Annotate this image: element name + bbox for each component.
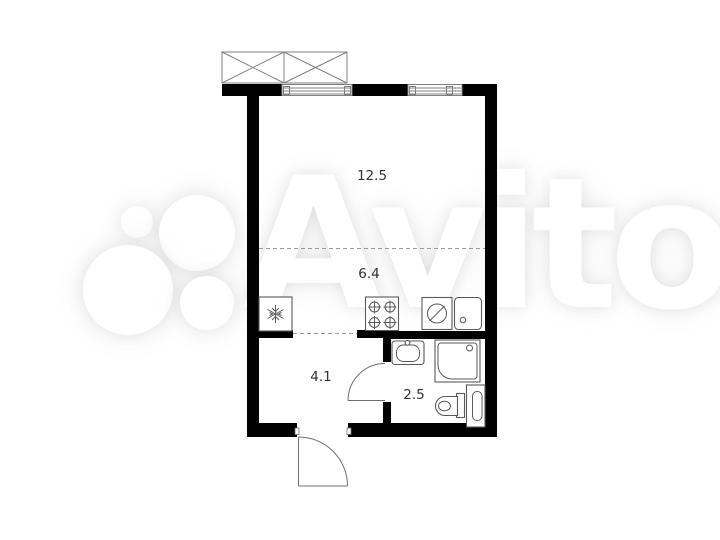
- bathroom-sink-icon: [392, 340, 424, 364]
- room-label-living: 12.5: [357, 168, 387, 184]
- walls: [222, 84, 497, 437]
- stove-icon: [366, 297, 399, 331]
- wall-segment: [348, 423, 485, 437]
- toilet-icon: [436, 394, 465, 418]
- wall-segment: [357, 330, 384, 338]
- wall-segment: [247, 96, 259, 423]
- window-icon: [282, 85, 352, 96]
- wall-segment: [383, 330, 391, 362]
- shower-icon: [435, 340, 480, 382]
- kitchen-sink-icon: [455, 298, 482, 330]
- wall-segment: [391, 331, 485, 339]
- floor-plan-svg: 12.5 6.4 4.1 2.5: [0, 0, 720, 540]
- wall-segment: [485, 96, 497, 437]
- room-label-kitchen: 6.4: [358, 266, 379, 282]
- door-swing-icon: [348, 364, 385, 401]
- wall-segment: [462, 84, 497, 96]
- wall-segment: [352, 84, 408, 96]
- window-icon: [408, 85, 462, 96]
- floor-plan-image: Avito: [0, 0, 720, 540]
- room-label-hallway: 4.1: [310, 369, 331, 385]
- wall-segment: [247, 423, 297, 437]
- fridge-icon: [259, 297, 292, 331]
- washing-machine-icon: [422, 298, 452, 330]
- utility-cabinet-icon: [467, 385, 486, 427]
- wall-segment: [222, 84, 282, 96]
- room-label-bathroom: 2.5: [403, 387, 424, 403]
- balcony-icon: [222, 52, 347, 83]
- wall-segment: [383, 402, 391, 437]
- door-swing-icon: [295, 428, 351, 486]
